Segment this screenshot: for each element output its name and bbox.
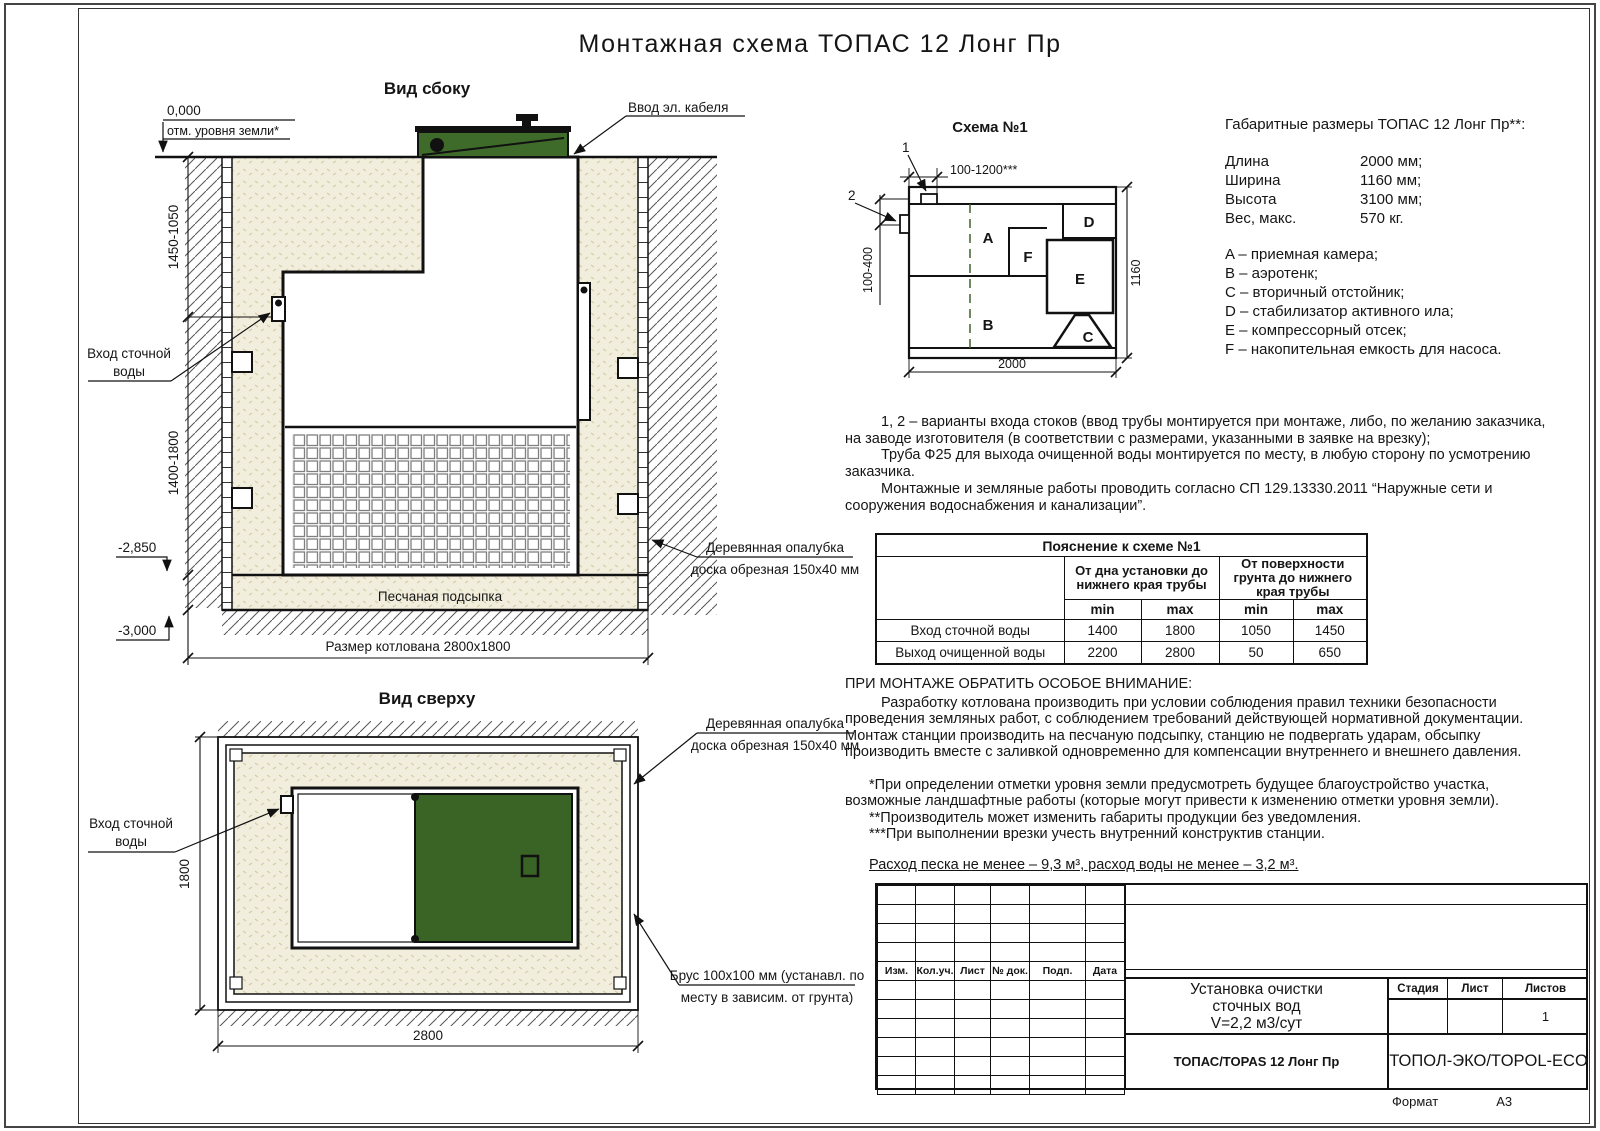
scheme-title: Схема №1 bbox=[952, 119, 1027, 136]
plan-beam-leader bbox=[634, 914, 679, 985]
top-view-drawing: Вид сверху 1800 2800 Вход сточной bbox=[85, 688, 855, 1090]
table-subheader: max bbox=[1293, 600, 1367, 620]
spec-name: Вес, макс. bbox=[1225, 209, 1360, 228]
mark-bottom-arrow bbox=[155, 616, 169, 640]
revision-table: Изм. Кол.уч. Лист № док. Подп. Дата bbox=[877, 885, 1125, 1095]
ground-note-label: отм. уровня земли* bbox=[167, 124, 279, 138]
drawing-sheet: Монтажная схема ТОПАС 12 Лонг Пр Вид bbox=[0, 0, 1600, 1131]
table-subheader: min bbox=[1064, 600, 1141, 620]
plan-formwork-label-1: Деревянная опалубка bbox=[706, 716, 845, 731]
doc-title-cell: Установка очистки сточных вод V=2,2 м3/с… bbox=[1126, 979, 1387, 1033]
plan-formwork-leader bbox=[634, 733, 697, 784]
plan-beam-label-2: месту в зависим. от грунта) bbox=[681, 990, 853, 1005]
brace bbox=[618, 358, 638, 378]
table-title: Пояснение к схеме №1 bbox=[876, 534, 1367, 557]
plan-dim-width-label: 2800 bbox=[413, 1028, 443, 1043]
compartment-e: E bbox=[1075, 271, 1085, 288]
notes-block-2: Монтажные и земляные работы проводить со… bbox=[845, 481, 1559, 514]
plan-inlet-label-2: воды bbox=[115, 834, 147, 849]
dim-upper-label: 1450-1050 bbox=[166, 205, 181, 270]
callout-2-leader bbox=[855, 203, 896, 221]
spec-value: 1160 мм; bbox=[1360, 171, 1421, 190]
table-row-name: Вход сточной воды bbox=[876, 620, 1064, 642]
top-view-title: Вид сверху bbox=[379, 689, 476, 708]
stage-header: Стадия bbox=[1389, 979, 1447, 998]
note-paragraph: Монтажные и земляные работы проводить со… bbox=[845, 481, 1559, 514]
sheets-value: 1 bbox=[1503, 1000, 1588, 1032]
table-cell: 1050 bbox=[1219, 620, 1293, 642]
sheets-header: Листов bbox=[1503, 979, 1588, 998]
doc-title-line: Установка очистки bbox=[1190, 981, 1323, 998]
table-cell: 1800 bbox=[1141, 620, 1219, 642]
stamp-line bbox=[1124, 904, 1588, 905]
format-note: ФорматА3 bbox=[1392, 1094, 1512, 1109]
cable-label: Ввод эл. кабеля bbox=[628, 100, 728, 115]
notes-block-1: 1, 2 – варианты входа стоков (ввод трубы… bbox=[845, 414, 1559, 480]
stamp-col-header: Дата bbox=[1086, 962, 1125, 981]
specs-title: Габаритные размеры ТОПАС 12 Лонг Пр**: bbox=[1225, 115, 1570, 134]
formwork-right bbox=[638, 157, 648, 610]
page-title: Монтажная схема ТОПАС 12 Лонг Пр bbox=[520, 30, 1120, 59]
scheme-inlet-1 bbox=[921, 194, 937, 204]
legend-item: D – стабилизатор активного ила; bbox=[1225, 302, 1570, 321]
legend-item: E – компрессорный отсек; bbox=[1225, 321, 1570, 340]
legend-item: B – аэротенк; bbox=[1225, 264, 1570, 283]
mark-sand-label: -2,850 bbox=[118, 540, 156, 555]
specs-block: Габаритные размеры ТОПАС 12 Лонг Пр**: Д… bbox=[1225, 115, 1570, 359]
formwork-label-2: доска обрезная 150х40 мм bbox=[691, 562, 859, 577]
inlet-pipe-dot bbox=[275, 300, 282, 307]
mark-bottom-label: -3,000 bbox=[118, 623, 156, 638]
scheme-drawing: Схема №1 A B F D E C 1 2 100-1200*** bbox=[830, 110, 1160, 390]
plan-corner-brace bbox=[230, 749, 242, 761]
note-paragraph: Труба Ф25 для выхода очищенной воды монт… bbox=[845, 447, 1559, 480]
warning-block: ПРИ МОНТАЖЕ ОБРАТИТЬ ОСОБОЕ ВНИМАНИЕ: Ра… bbox=[845, 676, 1561, 873]
spec-value: 3100 мм; bbox=[1360, 190, 1422, 209]
plan-formwork-label-2: доска обрезная 150х40 мм bbox=[691, 738, 859, 753]
cable-leader bbox=[574, 116, 626, 154]
compartment-a: A bbox=[983, 230, 994, 247]
dim-lower-label: 1400-1800 bbox=[166, 431, 181, 496]
legend-item: C – вторичный отстойник; bbox=[1225, 283, 1570, 302]
side-view-title: Вид сбоку bbox=[384, 79, 471, 98]
note-paragraph: 1, 2 – варианты входа стоков (ввод трубы… bbox=[845, 414, 1559, 447]
table-group-header: От дна установки до нижнего края трубы bbox=[1064, 557, 1219, 600]
pit-dim-label: Размер котлована 2800х1800 bbox=[326, 639, 511, 654]
plan-lid-hinge-dot bbox=[411, 935, 419, 943]
scheme-dim-right-label: 1160 bbox=[1129, 260, 1143, 287]
stamp-line bbox=[1124, 969, 1588, 970]
warning-note: ***При выполнении врезки учесть внутренн… bbox=[845, 826, 1561, 843]
table-cell: 2200 bbox=[1064, 642, 1141, 665]
plan-inlet-pipe bbox=[281, 796, 293, 813]
spec-name: Ширина bbox=[1225, 171, 1360, 190]
brace bbox=[232, 352, 252, 372]
scheme-dim-left-label: 100-400 bbox=[861, 247, 875, 293]
brace bbox=[232, 488, 252, 508]
compartment-d: D bbox=[1084, 214, 1095, 231]
title-block: Изм. Кол.уч. Лист № док. Подп. Дата bbox=[875, 883, 1588, 1090]
outlet-pipe-dot bbox=[581, 287, 588, 294]
compartment-f: F bbox=[1023, 249, 1032, 266]
table-cell: 2800 bbox=[1141, 642, 1219, 665]
legend-item: A – приемная камера; bbox=[1225, 245, 1570, 264]
stamp-col-header: Лист bbox=[955, 962, 991, 981]
plan-hatch-bottom bbox=[218, 1010, 638, 1026]
ground-hatch-bottom bbox=[222, 610, 648, 635]
table-row-name: Выход очищенной воды bbox=[876, 642, 1064, 665]
spec-name: Высота bbox=[1225, 190, 1360, 209]
spec-value: 570 кг. bbox=[1360, 209, 1404, 228]
spec-value: 2000 мм; bbox=[1360, 152, 1422, 171]
compartment-b: B bbox=[983, 317, 994, 334]
tank-grid-section bbox=[292, 434, 570, 568]
plan-lid-green bbox=[415, 794, 572, 942]
warning-title: ПРИ МОНТАЖЕ ОБРАТИТЬ ОСОБОЕ ВНИМАНИЕ: bbox=[845, 676, 1561, 693]
brace bbox=[618, 494, 638, 514]
warning-note: *При определении отметки уровня земли пр… bbox=[845, 777, 1561, 810]
plan-corner-brace bbox=[230, 977, 242, 989]
mark-sand-arrow bbox=[155, 557, 167, 571]
ground-hatch-left bbox=[185, 157, 222, 608]
spec-row: Вес, макс. 570 кг. bbox=[1225, 209, 1570, 228]
explain-table: Пояснение к схеме №1 От дна установки до… bbox=[875, 533, 1368, 665]
lid-vent-stem bbox=[522, 121, 531, 127]
scheme-inlet-2 bbox=[900, 215, 909, 233]
spec-name: Длина bbox=[1225, 152, 1360, 171]
stamp-col-header: № док. bbox=[991, 962, 1030, 981]
legend-item: F – накопительная емкость для насоса. bbox=[1225, 340, 1570, 359]
format-label: Формат bbox=[1392, 1094, 1438, 1109]
callout-1: 1 bbox=[902, 140, 910, 155]
callout-2: 2 bbox=[848, 188, 856, 203]
lid-vent-cap bbox=[516, 114, 538, 121]
sand-bed-label: Песчаная подсыпка bbox=[378, 589, 503, 604]
stamp-col-header: Подп. bbox=[1030, 962, 1086, 981]
table-subheader: min bbox=[1219, 600, 1293, 620]
sheet-header: Лист bbox=[1448, 979, 1502, 998]
spec-row: Ширина 1160 мм; bbox=[1225, 171, 1570, 190]
plan-corner-brace bbox=[614, 749, 626, 761]
compartment-legend: A – приемная камера; B – аэротенк; C – в… bbox=[1225, 245, 1570, 359]
formwork-label-1: Деревянная опалубка bbox=[706, 540, 845, 555]
spec-row: Длина 2000 мм; bbox=[1225, 152, 1570, 171]
warning-body: Разработку котлована производить при усл… bbox=[845, 695, 1561, 761]
plan-beam-label-1: Брус 100х100 мм (устанавл. по bbox=[670, 968, 865, 983]
side-view-drawing: Вид сбоку bbox=[85, 70, 855, 670]
table-subheader: max bbox=[1141, 600, 1219, 620]
table-cell: 1400 bbox=[1064, 620, 1141, 642]
doc-title-line: V=2,2 м3/сут bbox=[1190, 1015, 1323, 1032]
scheme-dim-top-label: 100-1200*** bbox=[950, 163, 1018, 177]
formwork-left bbox=[222, 157, 232, 610]
scheme-dim-bottom-label: 2000 bbox=[998, 357, 1026, 371]
stamp-col-header: Изм. bbox=[878, 962, 916, 981]
inlet-label-1: Вход сточной bbox=[87, 346, 171, 361]
plan-inlet-label-1: Вход сточной bbox=[89, 816, 173, 831]
table-cell: 650 bbox=[1293, 642, 1367, 665]
spec-row: Высота 3100 мм; bbox=[1225, 190, 1570, 209]
stamp-col-header: Кол.уч. bbox=[916, 962, 955, 981]
company-cell: ТОПОЛ-ЭКО/TOPOL-ECO bbox=[1389, 1035, 1588, 1088]
table-cell: 1450 bbox=[1293, 620, 1367, 642]
table-cell: 50 bbox=[1219, 642, 1293, 665]
table-corner-cell bbox=[876, 557, 1064, 620]
product-cell: ТОПАС/TOPAS 12 Лонг Пр bbox=[1126, 1035, 1387, 1088]
zero-mark-label: 0,000 bbox=[167, 103, 201, 118]
lid-bolt bbox=[430, 138, 444, 152]
plan-corner-brace bbox=[614, 977, 626, 989]
table-group-header: От поверхности грунта до нижнего края тр… bbox=[1219, 557, 1367, 600]
plan-lid-hinge-dot bbox=[411, 793, 419, 801]
inlet-label-2: воды bbox=[113, 364, 145, 379]
callout-1-leader bbox=[908, 155, 926, 191]
plan-hatch-top bbox=[218, 721, 638, 737]
consumption-note: Расход песка не менее – 9,3 м³, расход в… bbox=[845, 857, 1561, 874]
outlet-pipe bbox=[578, 283, 590, 420]
compartment-c: C bbox=[1083, 329, 1094, 346]
doc-title-line: сточных вод bbox=[1190, 998, 1323, 1015]
plan-dim-height-label: 1800 bbox=[177, 859, 192, 889]
format-value: А3 bbox=[1496, 1094, 1512, 1109]
warning-note: **Производитель может изменить габариты … bbox=[845, 810, 1561, 827]
